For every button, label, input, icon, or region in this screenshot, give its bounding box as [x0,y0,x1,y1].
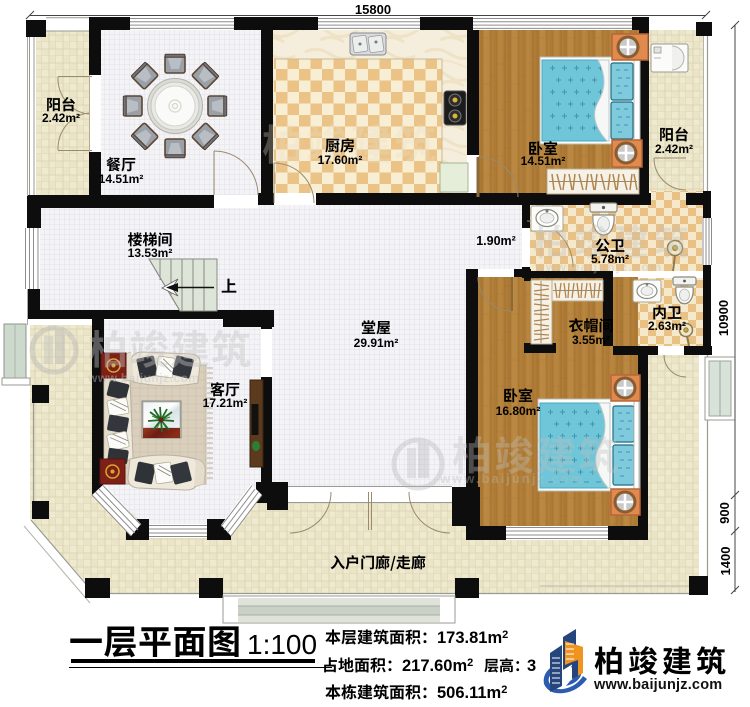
svg-text:13.53m²: 13.53m² [128,246,173,260]
svg-text:506.11m2: 506.11m2 [437,684,507,702]
svg-text:2.63m²: 2.63m² [648,319,686,333]
svg-text:www.baijunjz.com: www.baijunjz.com [593,677,722,693]
svg-text:29.91m²: 29.91m² [354,336,399,350]
svg-text:900: 900 [717,502,732,524]
svg-text:15800: 15800 [355,2,391,17]
svg-text:14.51m²: 14.51m² [521,154,566,168]
svg-text:5.78m²: 5.78m² [591,252,629,266]
svg-text:2.42m²: 2.42m² [42,111,80,125]
svg-text:217.60m2: 217.60m2 [402,657,473,675]
svg-text:10900: 10900 [716,300,731,336]
svg-text:1:100: 1:100 [247,629,317,660]
svg-text:www.baijunjz.com: www.baijunjz.com [439,471,584,486]
svg-text:16.80m²: 16.80m² [496,404,541,418]
svg-text:173.81m2: 173.81m2 [437,629,508,647]
svg-text:17.60m²: 17.60m² [318,153,363,167]
svg-text:2.42m²: 2.42m² [655,142,693,156]
svg-text:3: 3 [527,657,536,675]
svg-text:14.51m²: 14.51m² [99,172,144,186]
svg-text:www.baijunjz.com: www.baijunjz.com [87,371,200,385]
svg-text:17.21m²: 17.21m² [203,396,248,410]
svg-text:1.90m²: 1.90m² [476,234,516,248]
svg-text:1400: 1400 [718,547,733,576]
svg-text:3.55m²: 3.55m² [572,333,610,347]
